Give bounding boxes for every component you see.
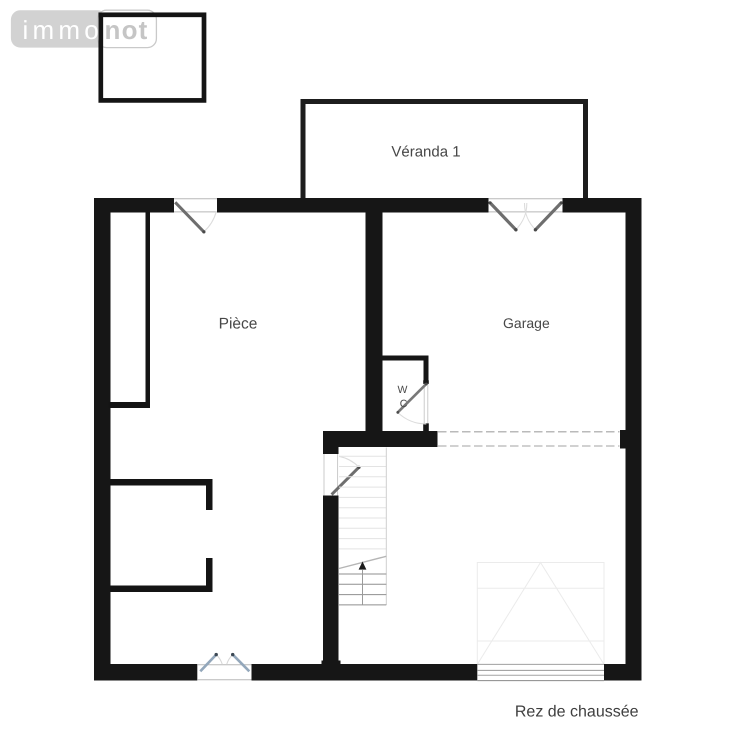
svg-text:W: W [398,384,408,396]
svg-text:C: C [400,398,408,410]
svg-text:immo: immo [23,15,103,45]
svg-text:Rez de chaussée: Rez de chaussée [515,704,639,721]
svg-text:Garage: Garage [503,315,550,331]
svg-text:Véranda 1: Véranda 1 [391,144,460,161]
svg-text:not: not [105,15,149,45]
svg-text:Pièce: Pièce [219,315,258,332]
